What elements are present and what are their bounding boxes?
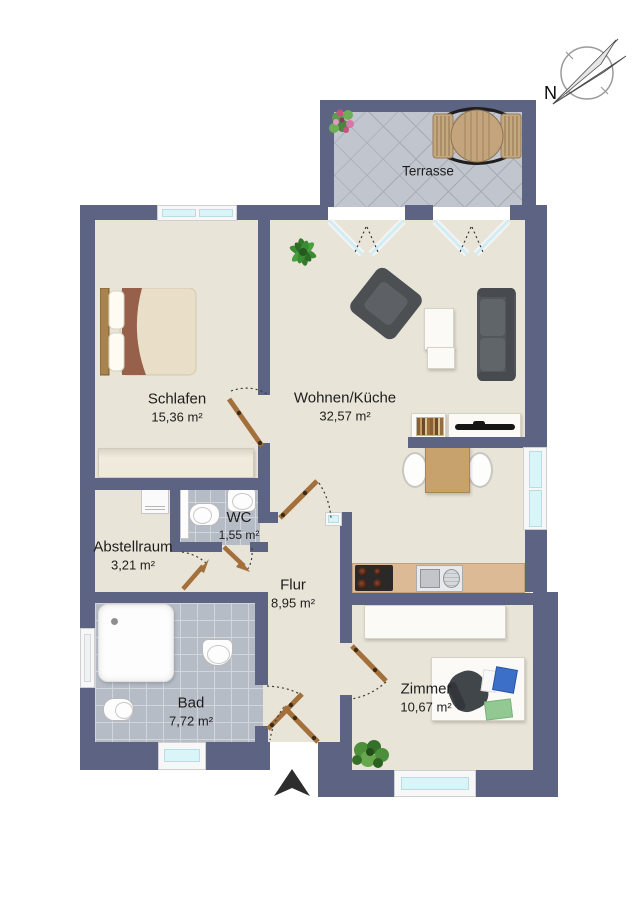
bad-area: 7,72 m² [169, 713, 213, 729]
wall-wc-bottom-a [180, 542, 222, 552]
wall-terrace-left [320, 100, 334, 207]
storage-appliance [141, 488, 169, 514]
floor-plan-canvas: N Terrasse Schlafen 15,36 m² Wohnen/Küch… [0, 0, 636, 900]
window-bad-left-pane [84, 634, 91, 682]
window-kitchen-pass-pane [328, 515, 339, 523]
sofa-backrest [506, 290, 514, 379]
wall-kitchen-bottom [340, 593, 535, 605]
appliance-line-1 [145, 506, 165, 507]
label-wohnen-kueche: Wohnen/Küche 32,57 m² [294, 390, 396, 425]
shower-drain [111, 618, 118, 625]
bad-name: Bad [169, 695, 213, 714]
tv-center [473, 421, 485, 426]
wohnen-kueche-name: Wohnen/Küche [294, 390, 396, 409]
wall-schlafen-right-a [258, 220, 270, 395]
sink-basin [420, 569, 440, 588]
wall-tv-halfwall [408, 437, 525, 448]
sofa-cushion-1 [480, 299, 505, 336]
wc-area: 1,55 m² [219, 528, 260, 543]
wc-toilet [189, 503, 220, 526]
abstellraum-area: 3,21 m² [93, 557, 172, 573]
sink-drainboard [443, 569, 460, 588]
window-wohnen-pane-2 [529, 490, 542, 527]
wall-bottom-left-a [80, 742, 163, 770]
label-flur: Flur 8,95 m² [271, 577, 315, 612]
label-wc: WC 1,55 m² [219, 509, 260, 543]
wall-wc-bottom-b [250, 542, 268, 552]
wc-name: WC [219, 509, 260, 528]
wc-sink-basin [232, 493, 253, 510]
tv-icon [455, 424, 515, 430]
window-bad-bottom-pane [164, 749, 200, 762]
kitchen-sink [416, 565, 463, 592]
wall-right-upper [525, 205, 547, 447]
label-abstellraum: Abstellraum 3,21 m² [93, 539, 172, 574]
wc-toilet-bowl [193, 507, 212, 524]
double-bed [100, 288, 197, 376]
zimmer-name: Zimmer [400, 681, 451, 700]
terrace-tile-floor [333, 111, 523, 207]
dining-table [425, 446, 470, 493]
north-arrow-icon [553, 39, 626, 104]
window-wohnen-pane-1 [529, 451, 542, 488]
flur-area: 8,95 m² [271, 595, 315, 611]
books [416, 417, 444, 436]
zimmer-area: 10,67 m² [400, 699, 451, 715]
sofa-cushion-2 [480, 338, 505, 371]
dining-chair-right [467, 452, 493, 488]
armchair-cushion [362, 280, 409, 327]
burner-1 [358, 567, 367, 576]
wall-terrace-right [522, 100, 536, 207]
schlafen-name: Schlafen [148, 391, 206, 410]
window-schlafen-pane-1 [162, 209, 196, 217]
label-zimmer: Zimmer 10,67 m² [400, 681, 451, 716]
side-table-lower [427, 347, 455, 369]
bad-sink-basin [207, 645, 230, 664]
wall-wohnen-stub [258, 512, 278, 523]
wall-bottom-right-b [474, 770, 558, 797]
bad-toilet-bowl [115, 702, 133, 719]
shower [98, 604, 174, 682]
wall-top-b [237, 205, 328, 220]
window-zimmer-pane [401, 777, 469, 790]
terrasse-name: Terrasse [402, 164, 454, 179]
zimmer-sideboard [364, 605, 506, 639]
tv-board [448, 413, 521, 438]
burner-3 [357, 579, 367, 589]
wall-right-lower [533, 592, 558, 797]
wall-top-a [80, 205, 158, 220]
abstellraum-name: Abstellraum [93, 539, 172, 558]
laptop [492, 666, 518, 693]
burner-2 [374, 568, 381, 575]
schlafen-area: 15,36 m² [148, 409, 206, 425]
flur-name: Flur [271, 577, 315, 596]
stove [355, 565, 393, 591]
entrance-arrow-icon [274, 769, 310, 796]
wall-top-pillar [405, 205, 433, 220]
label-bad: Bad 7,72 m² [169, 695, 213, 730]
wall-terrace-top [320, 100, 536, 112]
bad-toilet [103, 698, 134, 721]
wall-zimmer-left-a [340, 605, 352, 643]
appliance-line-2 [145, 509, 165, 510]
side-table [424, 308, 454, 350]
wall-zimmer-left-b [340, 695, 352, 742]
sofa [477, 288, 516, 381]
wc-open-door-leaf [180, 489, 189, 539]
window-schlafen-pane-2 [199, 209, 233, 217]
label-terrasse: Terrasse [402, 164, 454, 181]
desk-pad [484, 698, 513, 720]
burner-4 [373, 579, 382, 588]
wall-right-mid [525, 530, 547, 592]
bookshelf [411, 413, 446, 438]
wall-bottom-right-a [345, 770, 396, 797]
wohnen-kueche-area: 32,57 m² [294, 408, 396, 424]
compass-label: N [544, 83, 557, 103]
wall-bad-right-a [255, 603, 268, 685]
wardrobe [98, 448, 254, 478]
wall-bad-top [80, 592, 268, 603]
label-schlafen: Schlafen 15,36 m² [148, 391, 206, 426]
wall-bottom-left-b [206, 742, 270, 770]
wall-bad-right-b [255, 726, 268, 742]
